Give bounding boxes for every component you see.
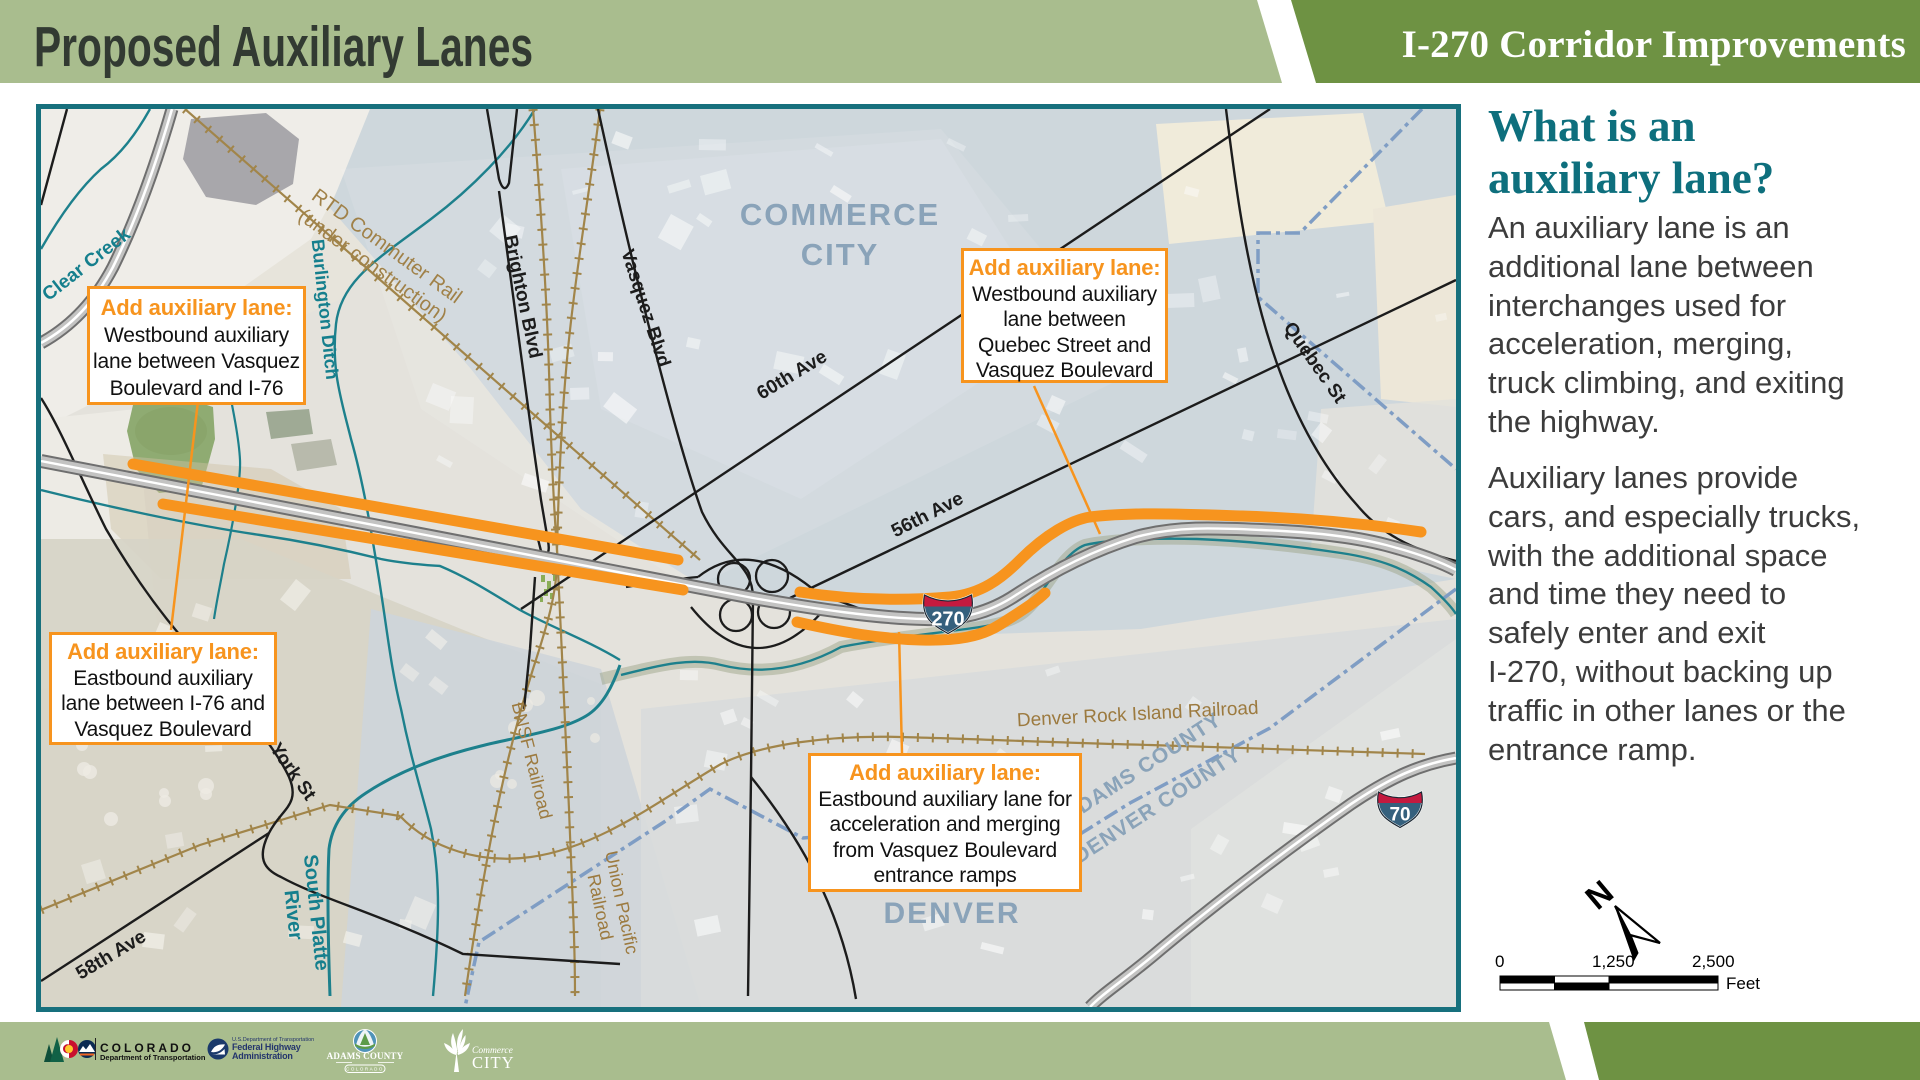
svg-text:Feet: Feet (1726, 974, 1760, 993)
svg-text:COLORADO: COLORADO (346, 1067, 384, 1072)
svg-text:CITY: CITY (472, 1053, 515, 1072)
svg-text:ADAMS COUNTY: ADAMS COUNTY (327, 1051, 404, 1061)
svg-text:CITY: CITY (801, 237, 880, 272)
svg-text:COMMERCE: COMMERCE (740, 197, 940, 232)
svg-text:0: 0 (1495, 952, 1504, 971)
svg-text:70: 70 (1389, 805, 1410, 826)
svg-text:1,250: 1,250 (1592, 952, 1635, 971)
svg-text:N: N (1578, 873, 1620, 917)
svg-text:2,500: 2,500 (1692, 952, 1735, 971)
svg-text:270: 270 (931, 609, 964, 631)
svg-text:DENVER: DENVER (883, 897, 1020, 930)
